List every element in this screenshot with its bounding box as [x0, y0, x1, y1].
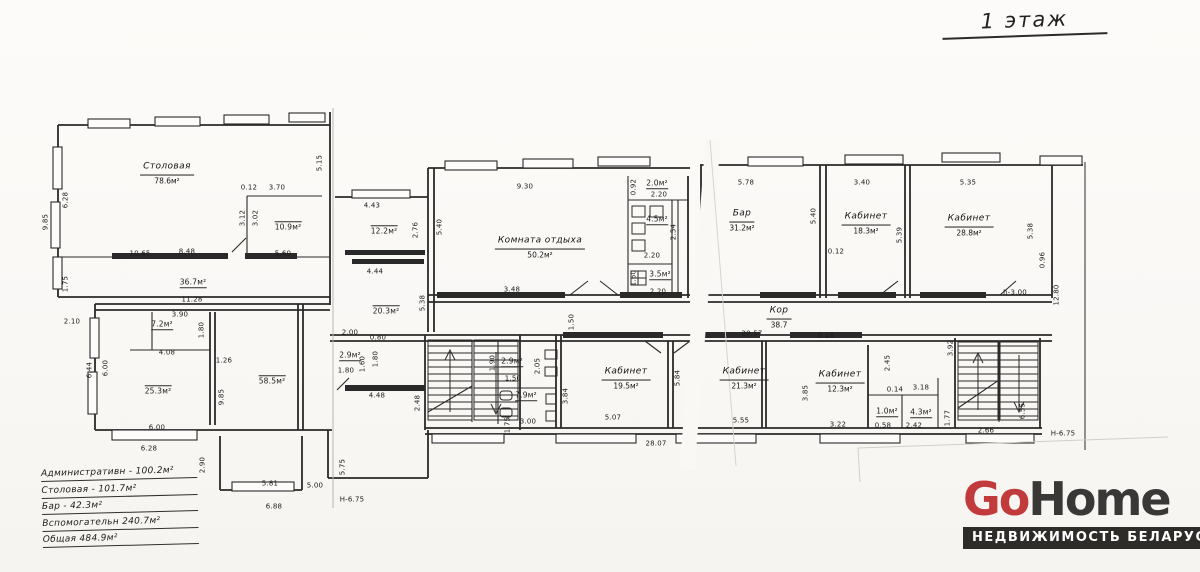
- dim-label: 5.07: [605, 415, 621, 422]
- room-area: 38.7: [767, 319, 792, 330]
- room-label-kabinet-213: Кабинет 21.3м²: [720, 367, 769, 392]
- room-area: 31.2м²: [729, 222, 754, 233]
- dim-label: 6.28: [63, 192, 70, 208]
- dim-label: 1.50: [505, 376, 521, 383]
- dim-label: 5.35: [960, 180, 976, 187]
- dim-label: 1.75: [505, 417, 512, 433]
- room-label-koridor: Кор 38.7: [767, 306, 792, 331]
- dim-label: Н-6.75: [340, 497, 365, 504]
- room-area: 19.5м²: [602, 380, 651, 391]
- area-label: 2.9м²: [501, 357, 523, 367]
- dim-label: 6.44: [87, 362, 94, 378]
- dim-label: 6.00: [149, 425, 165, 432]
- dim-label: 3.84: [563, 388, 570, 404]
- dim-label: 5.55: [733, 418, 749, 425]
- dim-label: 2.48: [415, 395, 422, 411]
- legend-row: Вспомогательн 240.7м²: [42, 515, 198, 531]
- dim-label: 6.55: [1020, 403, 1027, 419]
- dim-label: 2.42: [906, 423, 922, 430]
- dim-label: 28.07: [645, 441, 666, 448]
- dim-label: 4.43: [364, 203, 380, 210]
- dim-label: 1.80: [373, 351, 380, 367]
- dim-label: 6.00: [103, 360, 110, 376]
- dim-label: 9.30: [517, 184, 533, 191]
- logo-go-text: Go: [963, 472, 1028, 526]
- room-label-kabinet-195: Кабинет 19.5м²: [602, 367, 651, 392]
- room-name: Кабинет: [816, 370, 865, 384]
- dim-label: 1.60: [631, 270, 638, 286]
- dim-label: 1.60: [360, 356, 367, 372]
- dim-label: 5.78: [738, 180, 754, 187]
- dim-label: 1.90: [490, 355, 497, 371]
- dim-label: 2.20: [651, 192, 667, 199]
- room-name: Столовая: [140, 162, 194, 176]
- legend-row: Общая 484.9м²: [43, 532, 199, 548]
- room-label-kabinet-183: Кабинет 18.3м²: [842, 212, 891, 237]
- dim-label: h-3.00: [1003, 290, 1027, 297]
- dim-label: 2.76: [413, 222, 420, 238]
- dim-label: 5.75: [340, 459, 347, 475]
- dim-label: 3.02: [253, 210, 260, 226]
- room-area: 12.3м²: [816, 383, 865, 394]
- room-area: 21.3м²: [720, 380, 769, 391]
- legend: Административн - 100.2м² Столовая - 101.…: [41, 466, 199, 553]
- dim-label: 3.12: [240, 210, 247, 226]
- dim-label: 4.08: [159, 350, 175, 357]
- area-label: 4.3м²: [910, 408, 932, 418]
- room-area: 28.8м²: [945, 227, 994, 238]
- dim-label: 9.85: [43, 214, 50, 230]
- area-label: 4.5м²: [646, 215, 668, 225]
- room-area: 18.3м²: [842, 225, 891, 236]
- dim-label: 5.84: [675, 370, 682, 386]
- dim-label: 6.28: [141, 446, 157, 453]
- room-name: Бар: [729, 209, 754, 223]
- room-name: Кабинет: [945, 214, 994, 228]
- dim-label: 2.20: [650, 289, 666, 296]
- dim-label: 8.48: [179, 249, 195, 256]
- dim-label: 2.00: [342, 330, 358, 337]
- dim-label: 20.57: [741, 331, 762, 338]
- logo-home-text: Home: [1028, 472, 1169, 526]
- area-label: 12.2м²: [371, 225, 398, 235]
- dim-label: 3.00: [520, 419, 536, 426]
- area-label: 58.5м²: [259, 375, 286, 385]
- dim-label: 0.14: [887, 387, 903, 394]
- floor-title: 1 этаж: [942, 5, 1108, 40]
- dim-label: 6.88: [266, 504, 282, 511]
- area-label: 7.9м²: [515, 391, 537, 401]
- dim-label: 1.50: [569, 314, 576, 330]
- dim-label: 5.38: [420, 295, 427, 311]
- walls: [58, 112, 1085, 490]
- dim-label: 5.38: [1028, 223, 1035, 239]
- dim-label: 2.45: [885, 355, 892, 371]
- dim-label: 9.85: [219, 389, 226, 405]
- area-label: 3.5м²: [649, 270, 671, 280]
- dim-label: 0.18: [818, 333, 834, 340]
- dim-label: 5.60: [275, 251, 291, 258]
- dim-label: 0.12: [828, 249, 844, 256]
- dim-label: 5.81: [262, 481, 278, 488]
- dim-label: 0.92: [631, 179, 638, 195]
- dim-label: 2.90: [200, 457, 207, 473]
- dim-label: 0.58: [875, 423, 891, 430]
- dim-label: 3.90: [172, 312, 188, 319]
- dim-label: 3.48: [504, 287, 520, 294]
- dim-label: 1.26: [216, 358, 232, 365]
- room-label-kabinet-123: Кабинет 12.3м²: [816, 370, 865, 395]
- dim-label: 2.54: [671, 224, 678, 240]
- dim-label: 1.80: [199, 322, 206, 338]
- room-area: 78.6м²: [140, 175, 194, 186]
- area-label: 10.9м²: [275, 221, 302, 231]
- dim-label: 2.10: [64, 319, 80, 326]
- dim-label: Н-6.75: [1051, 431, 1076, 438]
- dim-label: 2.20: [644, 253, 660, 260]
- dim-label: 11.28: [181, 297, 202, 304]
- legend-row: Бар - 42.3м²: [42, 499, 198, 515]
- area-label: 36.7м²: [180, 278, 207, 288]
- area-label: 25.3м²: [145, 385, 172, 395]
- room-label-stolovaya: Столовая 78.6м²: [140, 162, 194, 187]
- floor-plan-canvas: 1 этаж Административн - 100.2м² Столовая…: [0, 0, 1200, 572]
- dim-label: 5.40: [437, 219, 444, 235]
- dim-label: 0.12: [241, 185, 257, 192]
- dim-label: 3.22: [830, 422, 846, 429]
- gohome-logo: GoHome НЕДВИЖИМОСТЬ БЕЛАРУСИ: [963, 474, 1200, 549]
- dim-label: 12.80: [1054, 284, 1061, 305]
- room-label-kabinet-288: Кабинет 28.8м²: [945, 214, 994, 239]
- dim-label: 5.00: [307, 483, 323, 490]
- legend-row: Столовая - 101.7м²: [41, 482, 197, 498]
- room-label-komnata-otdyha: Комната отдыха 50.2м²: [495, 236, 585, 261]
- room-name: Кабинет: [602, 367, 651, 381]
- dim-label: 1.77: [945, 410, 952, 426]
- room-area: 50.2м²: [495, 249, 585, 260]
- dim-label: 5.40: [811, 208, 818, 224]
- dim-label: 5.15: [317, 155, 324, 171]
- dim-label: 4.48: [369, 393, 385, 400]
- room-name: Кор: [767, 306, 792, 320]
- logo-tagline: НЕДВИЖИМОСТЬ БЕЛАРУСИ: [963, 527, 1200, 549]
- gohome-logo-word: GoHome: [963, 474, 1200, 525]
- area-label: 1.0м²: [876, 407, 898, 417]
- dim-label: 10.65: [129, 251, 150, 258]
- dim-label: 1.80: [338, 368, 354, 375]
- dim-label: 0.80: [370, 335, 386, 342]
- dim-label: 2.05: [535, 358, 542, 374]
- dim-label: 5.39: [897, 227, 904, 243]
- room-label-bar: Бар 31.2м²: [729, 209, 754, 234]
- area-label: 2.0м²: [646, 179, 668, 189]
- dim-label: 0.96: [1040, 252, 1047, 268]
- dim-label: 3.18: [913, 385, 929, 392]
- area-label: 20.3м²: [373, 305, 400, 315]
- dim-label: 2.66: [978, 428, 994, 435]
- dim-label: 3.85: [803, 385, 810, 401]
- dim-label: 3.70: [269, 185, 285, 192]
- dim-label: 1.75: [63, 276, 70, 292]
- room-name: Комната отдыха: [495, 236, 585, 250]
- dim-label: 3.40: [854, 180, 870, 187]
- room-name: Кабинет: [842, 212, 891, 226]
- dim-label: 4.44: [367, 269, 383, 276]
- room-name: Кабинет: [720, 367, 769, 381]
- dim-label: 3.92: [948, 340, 955, 356]
- area-label: 7.2м²: [151, 320, 173, 330]
- legend-row: Административн - 100.2м²: [41, 466, 197, 482]
